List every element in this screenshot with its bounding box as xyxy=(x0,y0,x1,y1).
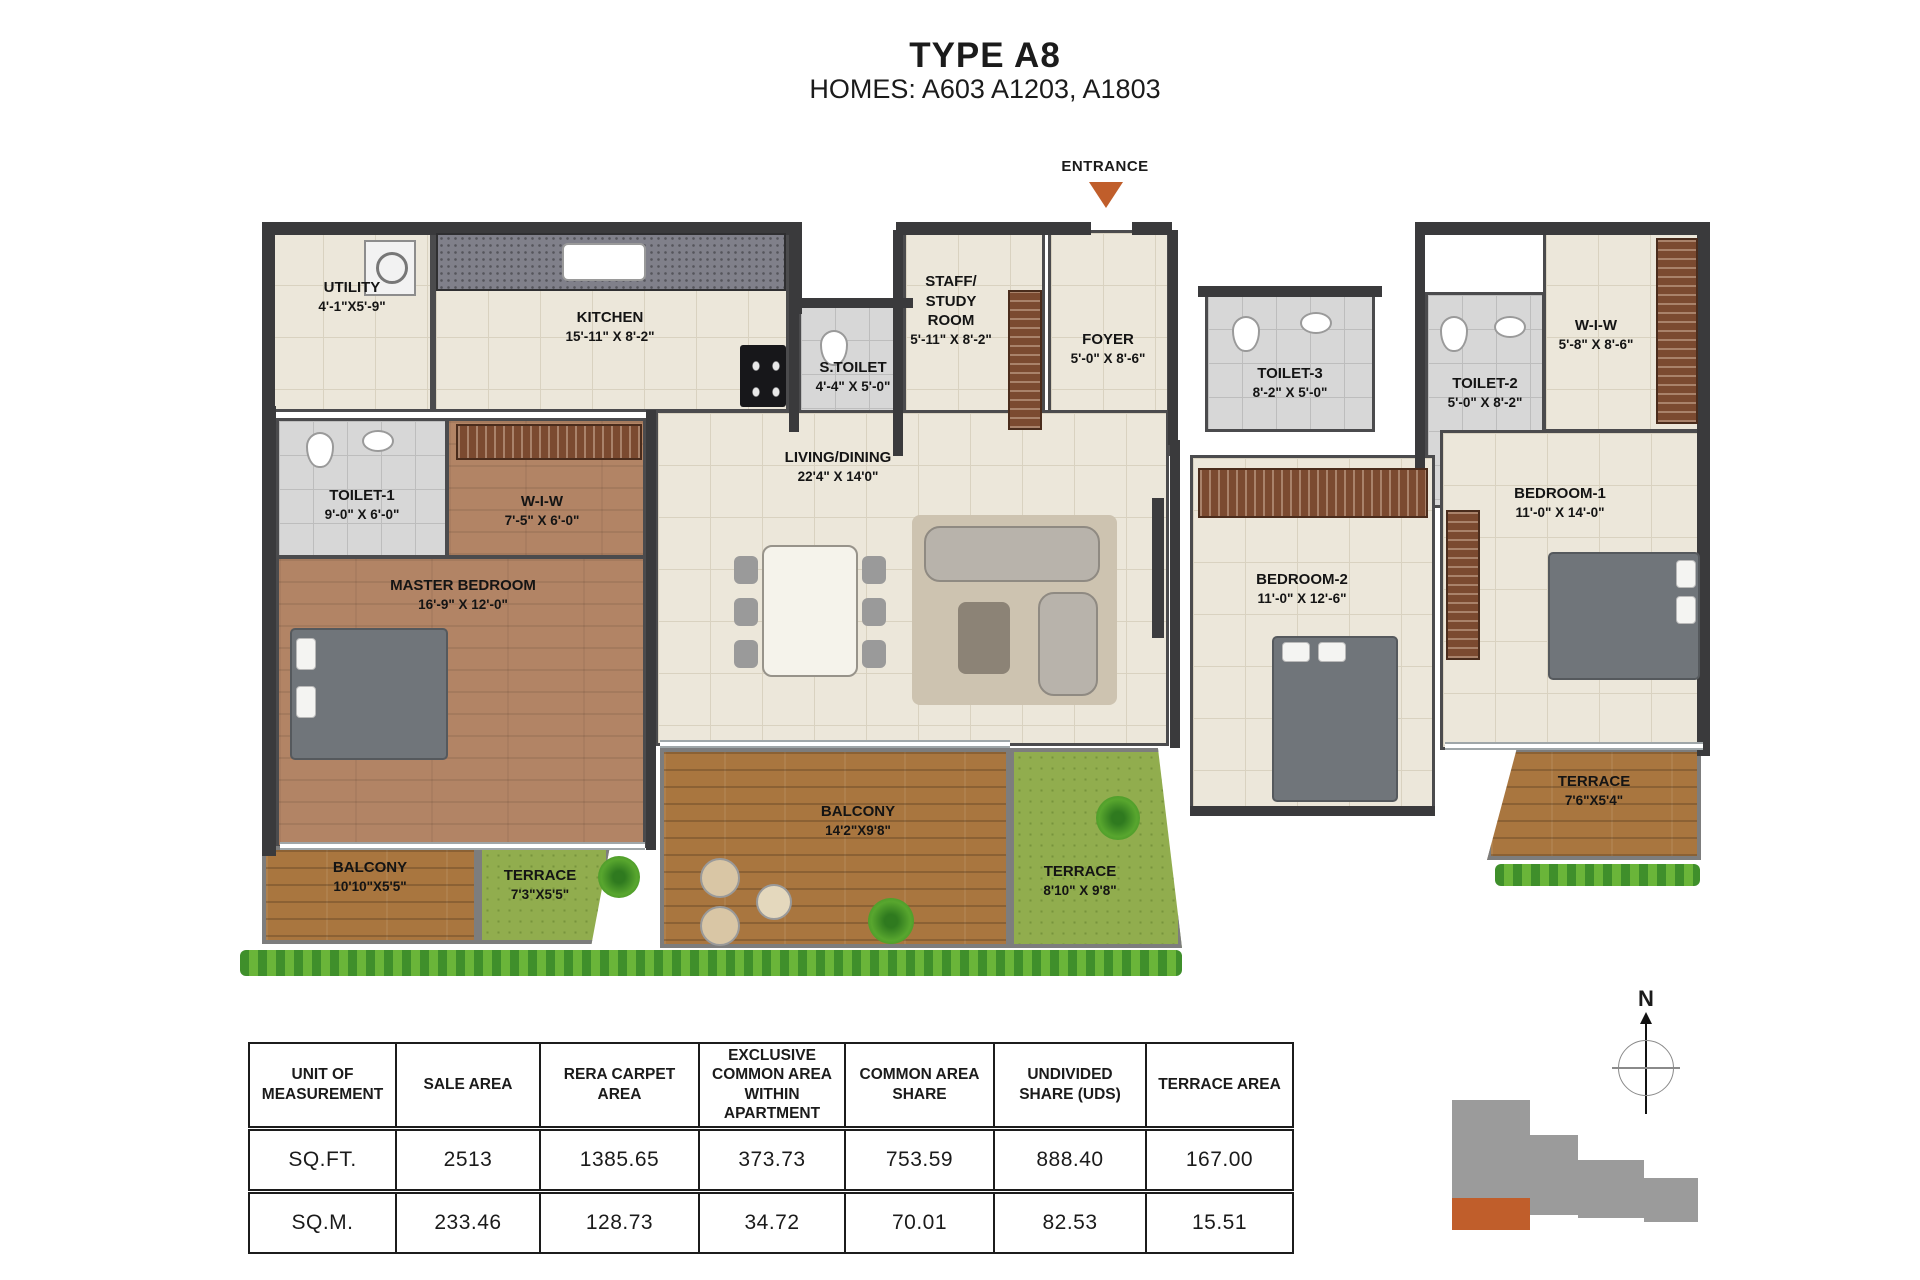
label-toilet-1: TOILET-1 9'-0" X 6'-0" xyxy=(282,486,442,523)
area-terrace-center xyxy=(1010,748,1182,948)
plant-icon xyxy=(1096,796,1140,840)
label-terrace-left: TERRACE 7'3"X5'5" xyxy=(470,866,610,903)
pillow-icon xyxy=(296,686,316,718)
wall-segment xyxy=(646,410,656,850)
page-subtitle: HOMES: A603 A1203, A1803 xyxy=(660,74,1310,105)
wall-segment xyxy=(1198,286,1382,297)
value-cell: 233.46 xyxy=(396,1191,540,1253)
key-plan-block xyxy=(1452,1100,1530,1198)
pillow-icon xyxy=(1282,642,1310,662)
key-plan-highlight xyxy=(1452,1198,1530,1230)
label-toilet-2: TOILET-2 5'-0" X 8'-2" xyxy=(1405,374,1565,411)
pillow-icon xyxy=(1676,596,1696,624)
wall-segment xyxy=(896,222,1046,235)
value-cell: 82.53 xyxy=(994,1191,1146,1253)
label-bedroom-2: BEDROOM-2 11'-0" X 12'-6" xyxy=(1212,570,1392,607)
sink-icon xyxy=(1300,312,1332,334)
label-terrace-right: TERRACE 7'6"X5'4" xyxy=(1514,772,1674,809)
value-cell: 70.01 xyxy=(845,1191,994,1253)
table-row: SQ.FT. 2513 1385.65 373.73 753.59 888.40… xyxy=(249,1128,1293,1191)
label-master-bedroom: MASTER BEDROOM 16'-9" X 12'-0" xyxy=(368,576,558,613)
value-cell: 888.40 xyxy=(994,1128,1146,1191)
value-cell: 1385.65 xyxy=(540,1128,699,1191)
value-cell: 128.73 xyxy=(540,1191,699,1253)
sofa-icon xyxy=(924,526,1100,582)
dining-table-icon xyxy=(762,545,858,677)
sink-icon xyxy=(362,430,394,452)
value-cell: 15.51 xyxy=(1146,1191,1293,1253)
col-header: UNIT OF MEASUREMENT xyxy=(249,1043,396,1128)
pillow-icon xyxy=(296,638,316,670)
value-cell: 34.72 xyxy=(699,1191,845,1253)
unit-cell: SQ.FT. xyxy=(249,1128,396,1191)
value-cell: 373.73 xyxy=(699,1128,845,1191)
hedge-bottom xyxy=(240,950,1182,976)
table-row: SQ.M. 233.46 128.73 34.72 70.01 82.53 15… xyxy=(249,1191,1293,1253)
label-kitchen: KITCHEN 15'-11" X 8'-2" xyxy=(530,308,690,345)
label-foyer: FOYER 5'-0" X 8'-6" xyxy=(1030,330,1186,367)
wall-segment xyxy=(1190,806,1435,816)
entrance-arrow-icon xyxy=(1089,182,1123,208)
label-utility: UTILITY 4'-1"X5'-9" xyxy=(272,278,432,315)
wardrobe-icon xyxy=(456,424,642,460)
col-header: UNDIVIDED SHARE (UDS) xyxy=(994,1043,1146,1128)
pillow-icon xyxy=(1318,642,1346,662)
key-plan-block xyxy=(1530,1135,1578,1215)
wall-segment xyxy=(262,406,276,856)
value-cell: 753.59 xyxy=(845,1128,994,1191)
desk-icon xyxy=(1446,510,1480,660)
hedge-right xyxy=(1495,864,1700,886)
label-wiw-right: W-I-W 5'-8" X 8'-6" xyxy=(1516,316,1676,353)
patio-chair-icon xyxy=(700,858,740,898)
sofa-icon xyxy=(1038,592,1098,696)
wall-segment xyxy=(1132,222,1172,235)
col-header: SALE AREA xyxy=(396,1043,540,1128)
wall-segment xyxy=(1415,222,1710,235)
col-header: RERA CARPET AREA xyxy=(540,1043,699,1128)
unit-cell: SQ.M. xyxy=(249,1191,396,1253)
key-plan-block xyxy=(1578,1160,1644,1218)
patio-table-icon xyxy=(756,884,792,920)
chair-icon xyxy=(734,556,758,584)
label-balcony-center: BALCONY 14'2"X9'8" xyxy=(778,802,938,839)
compass-north-label: N xyxy=(1638,986,1654,1012)
chair-icon xyxy=(862,640,886,668)
floor-plan-sheet: TYPE A8 HOMES: A603 A1203, A1803 ENTRANC… xyxy=(0,0,1920,1280)
plant-icon xyxy=(868,898,914,944)
label-staff-study: STAFF/ STUDY ROOM 5'-11" X 8'-2" xyxy=(895,272,1007,348)
window-band xyxy=(660,740,1010,748)
label-s-toilet: S.TOILET 4'-4" X 5'-0" xyxy=(798,358,908,395)
chair-icon xyxy=(862,556,886,584)
window-band xyxy=(1445,742,1703,750)
chair-icon xyxy=(734,598,758,626)
col-header: COMMON AREA SHARE xyxy=(845,1043,994,1128)
label-toilet-3: TOILET-3 8'-2" X 5'-0" xyxy=(1210,364,1370,401)
area-table: UNIT OF MEASUREMENT SALE AREA RERA CARPE… xyxy=(248,1042,1294,1254)
stove-hob-icon xyxy=(740,345,786,407)
table-header-row: UNIT OF MEASUREMENT SALE AREA RERA CARPE… xyxy=(249,1043,1293,1128)
patio-chair-icon xyxy=(700,906,740,946)
kitchen-sink-icon xyxy=(562,243,646,281)
page-title: TYPE A8 xyxy=(660,36,1310,76)
col-header: EXCLUSIVE COMMON AREA WITHIN APARTMENT xyxy=(699,1043,845,1128)
chair-icon xyxy=(734,640,758,668)
wall-segment xyxy=(262,222,275,418)
wardrobe-icon xyxy=(1198,468,1428,518)
label-wiw-left: W-I-W 7'-5" X 6'-0" xyxy=(462,492,622,529)
label-living-dining: LIVING/DINING 22'4" X 14'0" xyxy=(748,448,928,485)
wall-segment xyxy=(1170,440,1180,748)
tv-unit-icon xyxy=(1152,498,1164,638)
room-toilet-3 xyxy=(1205,292,1375,432)
label-balcony-left: BALCONY 10'10"X5'5" xyxy=(290,858,450,895)
window-band xyxy=(280,842,645,850)
entrance-label: ENTRANCE xyxy=(1030,158,1180,175)
col-header: TERRACE AREA xyxy=(1146,1043,1293,1128)
coffee-table-icon xyxy=(958,602,1010,674)
label-bedroom-1: BEDROOM-1 11'-0" X 14'-0" xyxy=(1470,484,1650,521)
chair-icon xyxy=(862,598,886,626)
label-terrace-center: TERRACE 8'10" X 9'8" xyxy=(1000,862,1160,899)
value-cell: 167.00 xyxy=(1146,1128,1293,1191)
compass-cross xyxy=(1612,1067,1680,1069)
wall-segment xyxy=(1046,222,1091,235)
pillow-icon xyxy=(1676,560,1696,588)
value-cell: 2513 xyxy=(396,1128,540,1191)
key-plan-block xyxy=(1644,1178,1698,1222)
